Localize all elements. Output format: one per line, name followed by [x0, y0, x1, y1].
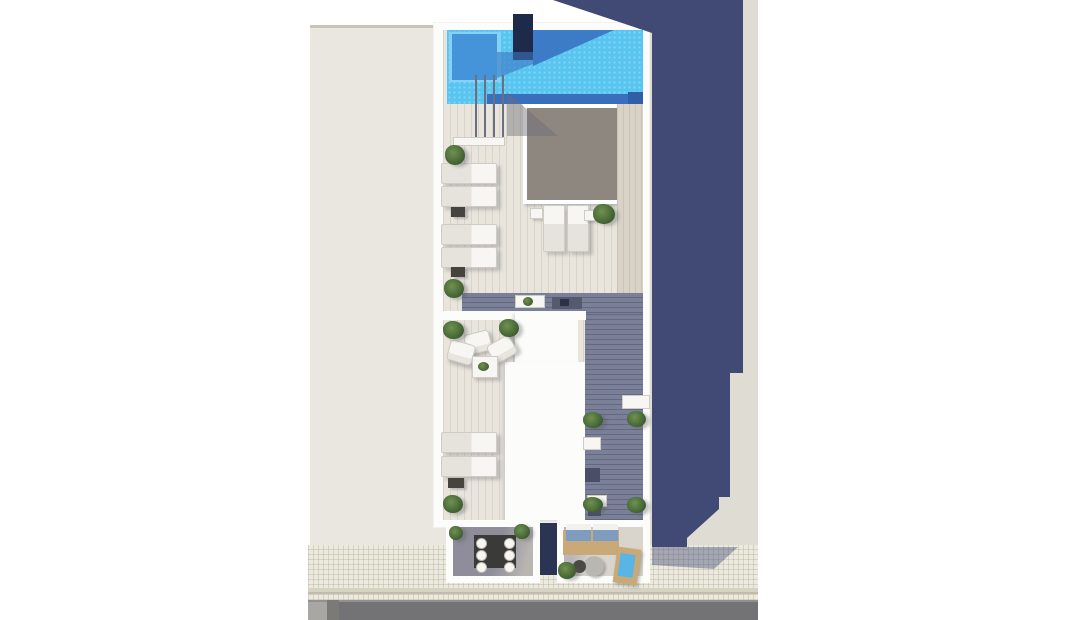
plant: [443, 321, 464, 339]
railing-post: [502, 75, 504, 137]
plant: [583, 497, 603, 512]
sofa-cushion: [593, 524, 618, 541]
plant: [627, 411, 646, 427]
plant: [593, 204, 615, 224]
dining-chair: [476, 562, 487, 573]
plant: [449, 526, 463, 540]
plant: [443, 495, 463, 513]
railing-post: [493, 75, 495, 137]
plant: [445, 145, 465, 165]
plant: [478, 362, 489, 371]
sun-lounger: [441, 163, 497, 184]
pool-corner-step: [628, 92, 643, 104]
pool-bench: [453, 137, 505, 146]
dining-chair: [476, 538, 487, 549]
sun-lounger: [441, 456, 497, 477]
ground-edge-line: [310, 25, 433, 28]
balcony-table: [583, 437, 601, 450]
curb-line-dark: [308, 592, 758, 594]
road-patch-light: [308, 602, 327, 620]
fire-bowl: [560, 299, 569, 306]
road: [308, 600, 758, 620]
side-table-white: [530, 208, 543, 219]
aerial-render-scene: [0, 0, 1070, 620]
railing-post: [475, 75, 477, 137]
stair-bulkhead: [513, 14, 533, 60]
dining-chair: [504, 538, 515, 549]
dining-chair: [476, 550, 487, 561]
sun-lounger: [441, 247, 497, 268]
road-patch-dark: [327, 600, 339, 620]
railing-post: [484, 75, 486, 137]
dining-chair: [504, 550, 515, 561]
sofa-cushion: [566, 524, 591, 541]
terrace-gap-shadow: [540, 523, 557, 575]
pool-shelf-inner: [452, 34, 497, 80]
building-roof: [433, 22, 650, 528]
round-table: [584, 556, 604, 576]
sun-lounger: [441, 224, 497, 245]
plant: [444, 279, 464, 298]
pool-edge-shadow: [487, 94, 643, 104]
balcony-chair: [585, 468, 600, 482]
roof-volume-upper: [515, 312, 578, 362]
plant: [499, 319, 519, 337]
dining-chair: [504, 562, 515, 573]
ground-plot-right: [650, 0, 758, 547]
side-deck-strip: [617, 104, 643, 294]
rooftop-unit: [622, 395, 650, 409]
plant: [583, 412, 603, 428]
sun-lounger: [441, 432, 497, 453]
plunge-tub-water: [618, 553, 636, 578]
plant: [627, 497, 646, 513]
side-table: [451, 207, 465, 217]
sun-lounger: [543, 205, 565, 252]
side-table: [451, 267, 465, 277]
roof-volume-lower: [505, 362, 585, 520]
plunge-tub: [613, 547, 642, 586]
plant: [523, 297, 533, 306]
plant: [558, 562, 576, 579]
ground-plot-left: [310, 25, 433, 547]
side-table: [448, 478, 464, 488]
skylight-glass: [527, 108, 617, 200]
plant: [514, 524, 530, 539]
sun-lounger: [441, 186, 497, 207]
skylight: [523, 104, 621, 204]
